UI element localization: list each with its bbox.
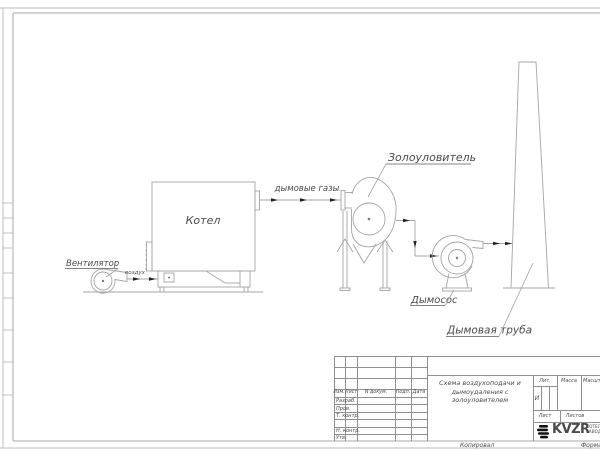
col-n-dokum: N докум. [357,390,395,395]
drawing-sheet: Вентилятор воздух Котел [0,0,600,450]
flue-arrow-1 [271,198,278,201]
col-data: Дата [411,390,427,395]
kopiroval-note: Копировал [460,442,494,449]
ash-collector-label: Золоуловитель [388,151,476,164]
flue-arrow-3 [330,198,337,201]
ground-lines [83,288,555,292]
massa-label: Масса [557,378,581,384]
exhauster-pedestal-left [446,274,449,289]
grid-line [533,386,557,387]
kvzr-logo-icon [536,424,550,440]
row-razrab: Разраб. [336,398,356,404]
chimney-arrow-2 [505,242,512,245]
smoke-exhauster-label: Дымосос [410,295,458,306]
cyclone-gusset-right [377,240,393,252]
exhauster-base-plate [443,288,472,291]
grid-line [334,419,427,420]
title-line-3: золоуловителем [428,396,532,405]
air-arrow-2 [149,277,156,280]
cyclone-axis-dot [368,218,371,221]
flue-arrow-2 [300,198,307,201]
kvzr-logo-text: KVZR [552,422,590,437]
duct-arrow-right-2 [430,254,437,257]
smoke-exhauster-symbol [432,236,483,291]
lit-label: Лит. [533,378,557,384]
grid-line [427,375,600,376]
fan-axis-dot [102,280,104,282]
grid-line [533,375,534,441]
flue-gases-label: дымовые газы [274,184,340,194]
air-arrow-1 [133,277,140,280]
title-line-1: Схема воздухоподачи и [428,379,532,388]
logo-subtitle-line2: ЗАВОД [586,430,600,435]
listov-label: Листов [560,413,590,419]
grid-line [581,375,582,410]
list-label: Лист [534,413,556,419]
grid-line [334,378,427,379]
exhauster-outlet-duct [465,240,483,249]
lit-value: И [533,395,541,402]
fan-outlet-duct [106,270,127,282]
boiler-label: Котел [186,214,221,227]
cyclone-foot-right [380,288,390,291]
cyclone-scroll-casing [352,177,397,246]
boiler-outlet-flange [255,191,260,210]
boiler-symbol [147,182,260,292]
fan-label: Вентилятор [66,259,119,269]
fan-symbol [91,269,127,293]
grid-line [334,356,600,357]
grid-line [549,386,550,410]
grid-line [533,410,600,411]
chimney-arrow-1 [493,242,500,245]
row-utv: Утв. [336,435,347,441]
row-prov: Пров. [336,406,351,412]
grid-line [395,356,396,441]
boiler-left-flange [147,242,153,271]
exhauster-pedestal-right [465,274,468,289]
logo-subtitle-line1: КОТЕЛЬНЫЙ [586,425,600,430]
document-title: Схема воздухоподачи и дымоудаления с зол… [428,379,532,405]
ash-collector-symbol [337,177,396,290]
row-n-kontr: Н. контр. [336,428,360,434]
drawing-frame [13,13,600,441]
left-margin-strip-cells [3,203,13,395]
chimney-label: Дымовая труба [446,325,532,337]
col-izm: Изм. [333,390,345,395]
cyclone-foot-left [340,288,350,291]
duct-arrow-right-1 [403,219,410,222]
cyclone-inlet-flange [341,191,345,211]
grid-line [411,356,412,441]
boiler-burner-dot [168,277,170,279]
grid-line [334,434,427,435]
row-t-kontr: Т. контр. [336,413,359,419]
exhauster-axis-dot [456,257,458,259]
format-note: Формат [581,442,600,449]
grid-line [334,367,427,368]
cyclone-gusset-left [337,239,353,252]
title-line-2: дымоудаления с [428,388,532,397]
duct-arrow-down [413,241,416,248]
masshtab-label: Масштаб [583,378,600,384]
chimney-symbol [511,62,549,288]
ash-collector-leader [368,164,386,197]
grid-line [334,356,335,441]
col-list: Лист [345,390,357,395]
air-label: воздух [125,270,146,276]
grid-line [541,386,542,410]
col-podp: Подп. [395,390,411,395]
boiler-base-diagonal [206,271,225,283]
